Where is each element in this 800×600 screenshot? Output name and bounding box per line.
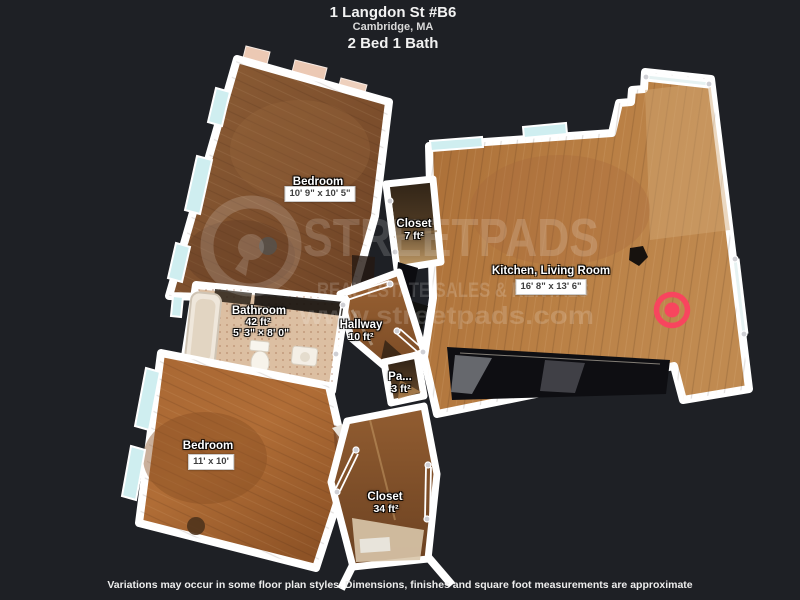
sink-icon [291, 346, 318, 367]
room-pantry [384, 355, 424, 403]
floorplan-page: STREETPADS REAL ESTATE SALES & RENTALS w… [0, 0, 800, 600]
room-closet-large [331, 406, 452, 589]
page-subtitle: Cambridge, MA [0, 21, 786, 33]
page-title: 1 Langdon St #B6 [0, 4, 786, 21]
window-icon [171, 296, 183, 317]
watermark-brand: STREETPADS [303, 208, 599, 268]
watermark-website: www.streetpads.com [299, 302, 594, 330]
disclaimer-text: Variations may occur in some floor plan … [0, 579, 800, 591]
watermark-tagline: REAL ESTATE SALES & RENTALS [317, 279, 589, 302]
bed-bath-count: 2 Bed 1 Bath [0, 35, 786, 53]
header: 1 Langdon St #B6 Cambridge, MA 2 Bed 1 B… [0, 4, 786, 53]
room-bedroom-bottom [122, 353, 348, 568]
floorplan-image: STREETPADS REAL ESTATE SALES & RENTALS w… [0, 0, 800, 600]
